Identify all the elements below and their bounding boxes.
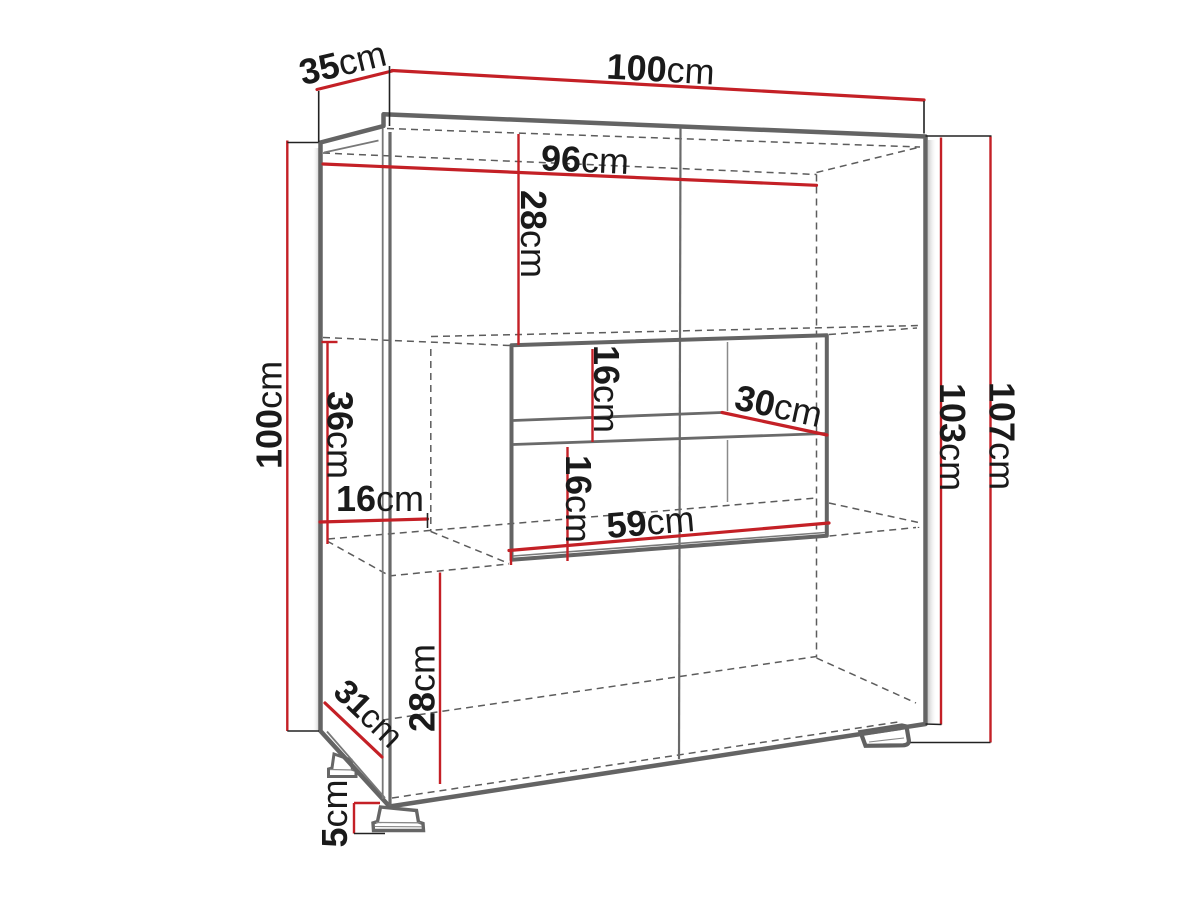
svg-text:96cm: 96cm	[540, 137, 630, 182]
svg-text:28cm: 28cm	[402, 644, 443, 732]
svg-text:28cm: 28cm	[513, 190, 554, 278]
svg-text:107cm: 107cm	[982, 382, 1023, 490]
svg-text:5cm: 5cm	[314, 779, 355, 847]
svg-text:16cm: 16cm	[336, 478, 424, 519]
svg-text:16cm: 16cm	[558, 455, 599, 543]
svg-text:36cm: 36cm	[320, 391, 361, 479]
svg-text:103cm: 103cm	[932, 383, 973, 491]
svg-text:59cm: 59cm	[605, 498, 696, 546]
svg-text:100cm: 100cm	[606, 46, 716, 93]
svg-text:100cm: 100cm	[249, 361, 290, 469]
svg-text:16cm: 16cm	[586, 345, 627, 433]
